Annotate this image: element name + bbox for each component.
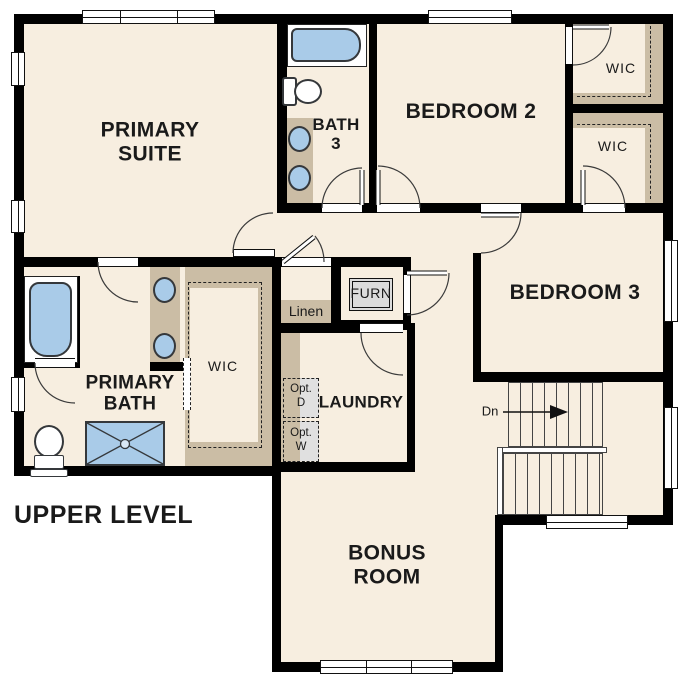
label-linen: Linen (289, 304, 323, 320)
label-wic-bedroom3: WIC (598, 139, 628, 155)
floor-plan: PRIMARYSUITE BATH3 BEDROOM 2 WIC WIC BED… (0, 0, 687, 687)
primary-toilet-tank (34, 455, 64, 469)
wall-laundry-top (272, 323, 360, 333)
doorway-wic-corridor (282, 257, 331, 267)
window-stairs-bottom (546, 515, 628, 529)
window-bath-left (11, 377, 25, 412)
wall-hall-top-2 (362, 203, 377, 213)
primary-sink-2 (153, 333, 176, 359)
label-laundry: LAUNDRY (319, 392, 404, 411)
primary-bathtub (29, 282, 72, 357)
wall-furnace-stub-top (403, 257, 411, 275)
wall-suite-right (277, 14, 287, 213)
doorway-suite-to-bath (98, 257, 138, 267)
stairs-railing-left (497, 447, 503, 515)
bath3-toilet-bowl (294, 79, 322, 104)
label-furnace: FURN (351, 286, 392, 302)
wall-laundry-bottom (272, 462, 415, 472)
doorway-bedroom2 (377, 203, 420, 213)
door-leaf-suite-hall (233, 249, 275, 257)
label-bath3: BATH3 (312, 115, 359, 153)
page-title: UPPER LEVEL (14, 501, 193, 530)
primary-shower (85, 421, 165, 466)
doorway-wic3 (583, 203, 625, 213)
window-suite-top (82, 10, 215, 24)
stairs-lower-flight (503, 453, 603, 515)
doorway-bath3 (322, 203, 362, 213)
wall-hall-top-3 (420, 203, 481, 213)
doorway-toilet-room (35, 358, 75, 368)
wall-wic-left (565, 64, 573, 203)
window-bonus-bottom (320, 660, 453, 674)
label-bonus-room: BONUSROOM (348, 541, 426, 588)
window-suite-left-2 (11, 200, 25, 233)
label-bedroom3: BEDROOM 3 (510, 281, 641, 305)
wall-vanity-stub (150, 362, 183, 371)
window-suite-left-1 (11, 52, 25, 86)
window-bedroom2-top (428, 10, 512, 24)
wall-laundry-right (407, 323, 415, 472)
bath3-sink-1 (288, 126, 311, 152)
bath3-sink-2 (288, 165, 311, 191)
window-stairs-right (664, 407, 678, 489)
wall-bonus-right (495, 515, 503, 672)
floor-bonus-lower (415, 515, 503, 672)
doorway-primary-wic (183, 358, 191, 410)
window-bedroom3-right (664, 240, 678, 322)
wall-bath3-bedroom2 (369, 14, 377, 203)
doorway-bedroom3 (481, 203, 521, 213)
wall-wic-divider (565, 104, 673, 113)
wic3-dash (577, 124, 651, 199)
primary-sink-1 (153, 277, 176, 303)
wall-bedroom3-left (473, 253, 481, 382)
doorway-furnace (403, 275, 411, 313)
wall-furnace-top (331, 257, 411, 267)
wall-suite-bottom-2 (138, 257, 282, 267)
wall-hall-top-1 (277, 203, 322, 213)
label-wic-primary: WIC (208, 359, 238, 375)
doorway-laundry (360, 323, 403, 333)
wall-hall-top-4 (521, 203, 583, 213)
primary-toilet-bowl (34, 425, 64, 458)
primary-toilet-base (30, 469, 68, 477)
label-opt-washer: Opt.W (290, 427, 312, 455)
label-primary-bath: PRIMARYBATH (85, 373, 174, 416)
bath3-bathtub (291, 28, 361, 62)
wall-middle-left (272, 257, 281, 672)
doorway-wic2 (565, 27, 573, 64)
label-opt-dryer: Opt.D (290, 383, 312, 411)
wall-suite-bottom-1 (14, 257, 98, 267)
label-wic-bedroom2: WIC (606, 61, 636, 77)
wall-bedroom3-bottom (473, 372, 673, 382)
stairs-upper-flight (508, 382, 603, 447)
label-primary-suite: PRIMARYSUITE (101, 118, 200, 165)
label-stairs-down: Dn (482, 405, 499, 420)
label-bedroom2: BEDROOM 2 (406, 100, 537, 124)
wall-hall-top-5 (625, 203, 673, 213)
